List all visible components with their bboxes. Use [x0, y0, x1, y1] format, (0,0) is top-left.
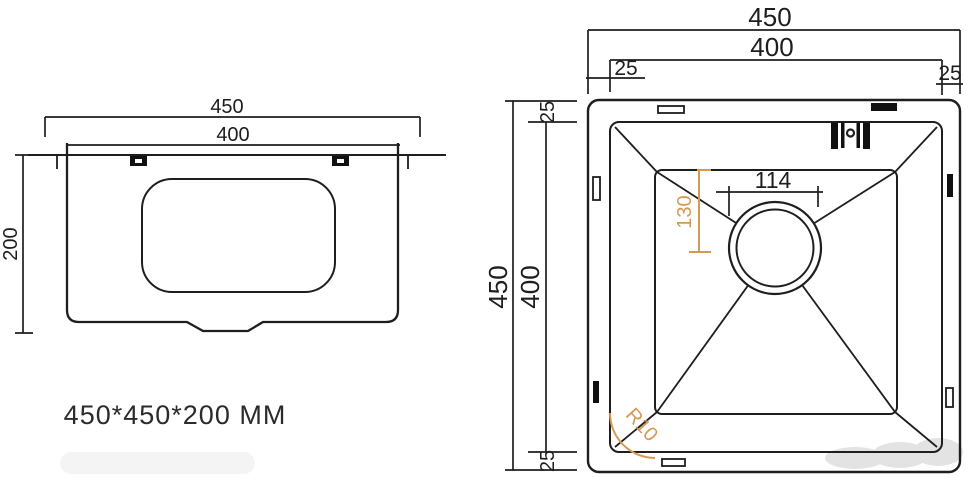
sink-technical-drawing-page: 450 400 200 450*450*200 MM: [0, 0, 970, 478]
mounting-clips-side: [130, 156, 349, 166]
side-height-label: 200: [0, 227, 22, 260]
side-view: 450 400 200 450*450*200 MM: [0, 96, 446, 474]
corner-diagonal: [895, 412, 937, 447]
top-overall-width-label: 450: [748, 2, 791, 32]
clip-icon: [593, 381, 599, 403]
sink-drawing-svg: 450 400 200 450*450*200 MM: [0, 0, 970, 478]
overall-size-label: 450*450*200 MM: [64, 400, 287, 430]
watermark: [60, 452, 255, 474]
corner-diagonal: [615, 127, 657, 172]
faucet-bar: [831, 123, 838, 149]
left-top-offset-label: 25: [537, 101, 559, 123]
drain-width-label: 114: [755, 167, 792, 193]
faucet-bar: [841, 123, 845, 148]
drain-offset-label: 130: [674, 195, 696, 228]
top-inner-width-label: 400: [750, 32, 793, 62]
clip-slot: [337, 159, 344, 163]
drain-outer-circle: [729, 202, 821, 294]
clip-icon: [658, 106, 684, 113]
sink-body-outline: [67, 143, 398, 331]
clip-slot: [135, 159, 142, 163]
faucet-hole-icon: [831, 123, 870, 149]
left-inner-depth-label: 400: [515, 265, 545, 308]
faucet-hole-circle: [847, 130, 854, 137]
clip-icon: [946, 388, 953, 407]
faucet-bar: [857, 123, 861, 148]
faucet-bar: [863, 123, 870, 149]
clip-icon: [871, 103, 897, 111]
clip-icon: [593, 177, 600, 200]
left-bottom-offset-label: 25: [537, 450, 559, 472]
clip-icon: [947, 174, 953, 197]
corner-diagonal: [895, 127, 937, 172]
side-overall-width-label: 450: [210, 96, 243, 118]
bowl-bottom-profile: [142, 179, 335, 292]
top-left-offset-label: 25: [614, 57, 637, 80]
top-view: 450 400 25 25 450 400 25 25 114: [483, 2, 963, 472]
left-overall-depth-label: 450: [483, 265, 513, 308]
top-right-offset-label: 25: [938, 62, 961, 85]
side-bowl-width-label: 400: [216, 124, 249, 146]
clip-icon: [662, 459, 685, 466]
